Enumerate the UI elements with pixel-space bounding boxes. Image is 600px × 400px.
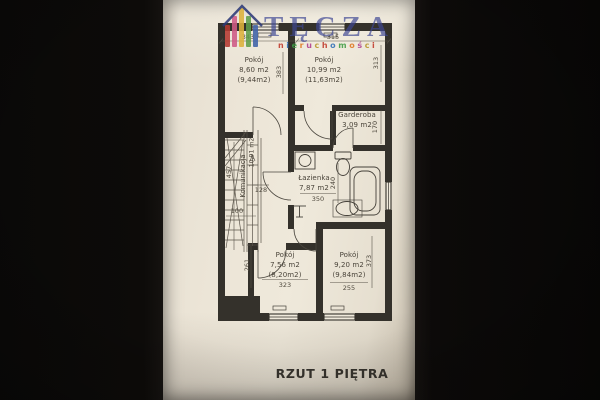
- room-label-top-right: Pokój 10,99 m2 (11,63m2): [293, 55, 355, 85]
- room-area-komunikacja: 10,91 m2: [249, 118, 256, 188]
- logo-brand: TĘCZA: [264, 13, 394, 42]
- plan-caption: RZUT 1 PIĘTRA: [262, 366, 402, 381]
- agency-logo-watermark: TĘCZA nieruchomości: [222, 3, 394, 50]
- dim-stair-width: 100: [223, 207, 251, 215]
- dim-hall-length: 457: [225, 152, 233, 192]
- dim-room-br-width: 255: [335, 284, 363, 292]
- dim-room-bl-side: 261: [243, 245, 251, 285]
- dim-garderoba-depth: 170: [371, 107, 379, 147]
- dim-bath-depth: 240: [329, 163, 337, 203]
- dim-room-tl-depth: 383: [275, 52, 283, 92]
- logo-house-icon: [222, 3, 264, 49]
- dim-room-br-depth: 373: [365, 241, 373, 281]
- dim-room-bl-width: 323: [271, 281, 299, 289]
- dim-bath-width: 350: [304, 195, 332, 203]
- floorplan-photo: Pokój 8,60 m2 (9,44m2) Pokój 10,99 m2 (1…: [0, 0, 600, 400]
- logo-tagline: nieruchomości: [278, 41, 394, 50]
- room-label-komunikacja: Komunikacja: [239, 141, 247, 211]
- room-label-bottom-left: Pokój 7,56 m2 (8,20m2): [255, 250, 315, 280]
- dim-hall-door: 128: [247, 186, 275, 194]
